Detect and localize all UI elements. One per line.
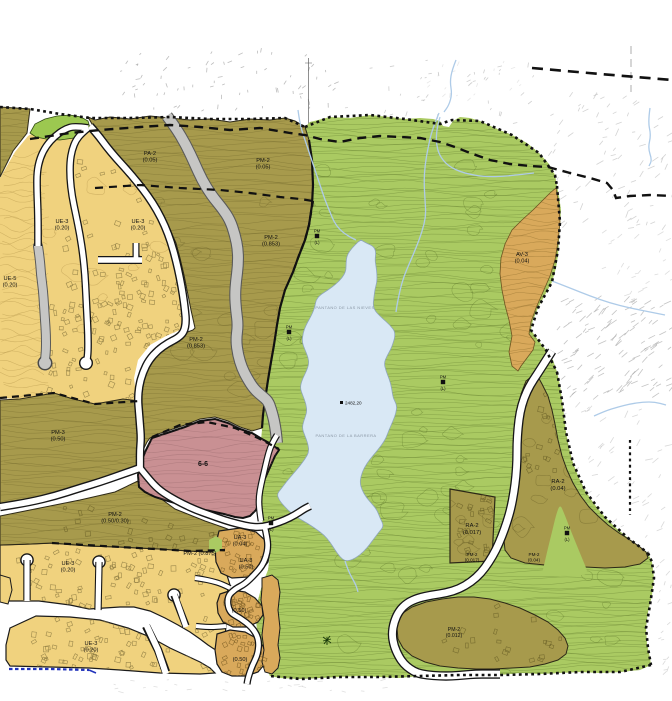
svg-text:UE-3(0.20): UE-3(0.20) [84,641,99,654]
svg-text:(L): (L) [286,336,292,341]
svg-text:PM-2 (0.875): PM-2 (0.875) [183,551,216,557]
svg-text:RA-2(0.04): RA-2(0.04) [550,479,565,492]
svg-text:PM-2(0.853): PM-2(0.853) [262,235,280,248]
svg-text:PA-2(0.05): PA-2(0.05) [143,151,158,164]
svg-text:PM: PM [440,375,447,380]
svg-text:PM: PM [564,526,571,531]
svg-text:(L): (L) [314,240,320,245]
svg-text:(L): (L) [564,537,570,542]
svg-text:UE-3(0.20): UE-3(0.20) [61,561,76,574]
svg-text:(L): (L) [268,527,274,532]
svg-text:UE-5(0.20): UE-5(0.20) [3,276,18,289]
svg-text:(L): (L) [440,386,446,391]
svg-text:RA-2(0.017): RA-2(0.017) [463,523,481,536]
svg-text:PM: PM [314,229,321,234]
svg-text:UA-3(0.50): UA-3(0.50) [239,558,254,571]
svg-text:PM-2(0.853): PM-2(0.853) [187,337,205,350]
svg-text:UA-3(0.04): UA-3(0.04) [233,535,248,548]
svg-text:AV-3(0.04): AV-3(0.04) [515,252,530,265]
svg-text:2482,20: 2482,20 [345,401,362,406]
svg-text:UE-3(0.20): UE-3(0.20) [55,219,70,232]
svg-text:PANTANO DE LA BARRERA: PANTANO DE LA BARRERA [315,433,376,438]
svg-text:PM-2(0.05): PM-2(0.05) [256,158,271,171]
svg-text:PM-3(0.50): PM-3(0.50) [51,430,66,443]
svg-text:PM-2(0.012): PM-2(0.012) [446,627,463,639]
svg-text:PANTANO DE LAS NIEVES: PANTANO DE LAS NIEVES [315,305,374,310]
svg-text:PM: PM [286,325,293,330]
svg-text:6-6: 6-6 [198,461,208,468]
svg-text:(0.50): (0.50) [232,608,247,614]
svg-text:(0.50): (0.50) [233,657,248,663]
svg-text:PM-2(0.04): PM-2(0.04) [528,552,540,563]
svg-text:PM-2(0.017): PM-2(0.017) [465,552,480,563]
svg-text:UE-3(0.20): UE-3(0.20) [131,219,146,232]
svg-text:PM: PM [268,516,275,521]
